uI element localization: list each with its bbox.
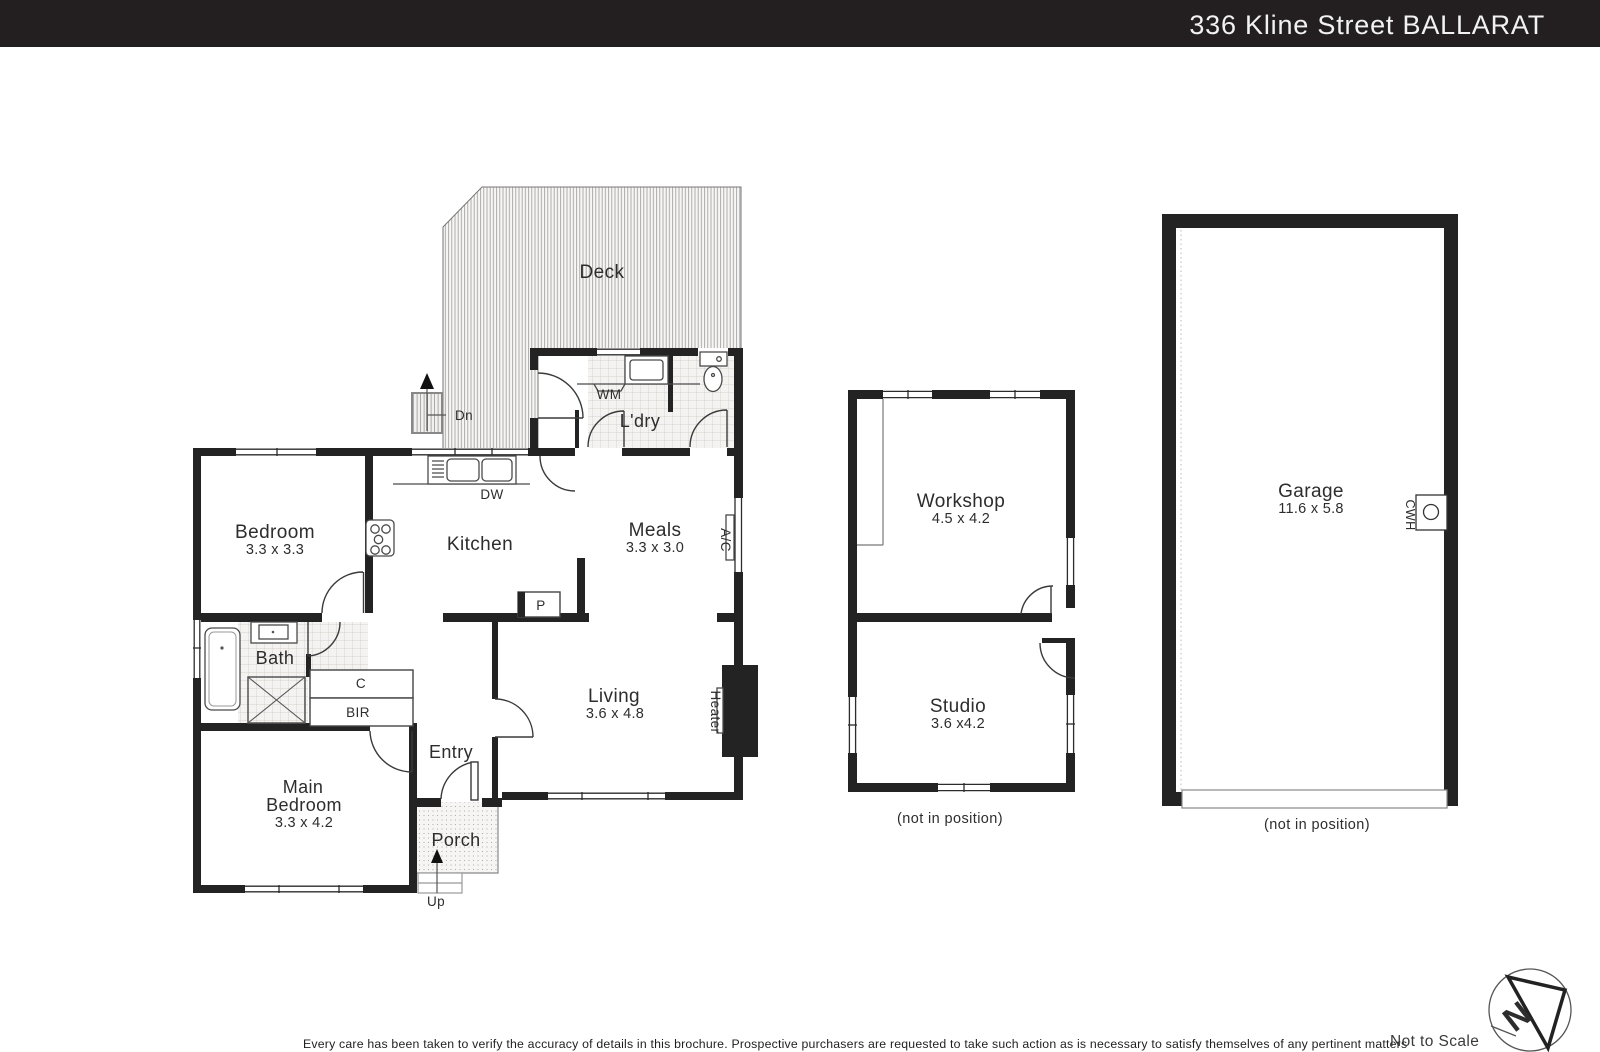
- footer: Every care has been taken to verify the …: [303, 1033, 1479, 1051]
- laundry-label: L'dry: [620, 411, 660, 431]
- page-title: 336 Kline Street BALLARAT: [1189, 10, 1545, 40]
- entry-label: Entry: [429, 742, 473, 762]
- workshop-label: Workshop: [917, 491, 1005, 512]
- workshop-dims: 4.5 x 4.2: [932, 511, 990, 527]
- header-bar: 336 Kline Street BALLARAT: [0, 0, 1600, 47]
- studio-bottom-window: [938, 783, 990, 792]
- robe-label: BIR: [346, 705, 370, 720]
- main-bedroom-dims: 3.3 x 4.2: [275, 815, 333, 831]
- not-to-scale-label: Not to Scale: [1390, 1033, 1479, 1050]
- disclaimer-text: Every care has been taken to verify the …: [303, 1037, 1407, 1051]
- down-arrow-icon: [420, 373, 434, 389]
- deck-stairs: [412, 373, 446, 433]
- main-bedroom-window: [245, 885, 363, 893]
- meals-dims: 3.3 x 3.0: [626, 540, 684, 556]
- workshop-window-1: [883, 390, 932, 399]
- living-label: Living: [588, 686, 640, 707]
- bath-window: [193, 620, 201, 678]
- bedroom-window: [236, 448, 316, 456]
- studio-dims: 3.6 x4.2: [931, 716, 985, 732]
- cupboard-label: C: [356, 676, 366, 691]
- workshop-side-window: [1066, 538, 1075, 585]
- cooktop: [366, 520, 394, 556]
- main-bedroom-door: [370, 731, 412, 772]
- porch-label: Porch: [431, 830, 480, 850]
- stairs-up-label: Up: [427, 894, 445, 909]
- dishwasher-label: DW: [480, 487, 503, 502]
- pantry-label: P: [536, 598, 545, 613]
- main-bedroom-label-2: Bedroom: [266, 795, 342, 815]
- hot-water-label: CWH: [1403, 499, 1417, 530]
- workshop-window-2: [990, 390, 1040, 399]
- living-window: [548, 792, 665, 800]
- studio-right-window: [1066, 695, 1075, 753]
- garage-door: [1182, 790, 1447, 808]
- bedroom-dims: 3.3 x 3.3: [246, 542, 304, 558]
- garage-dims: 11.6 x 5.8: [1278, 501, 1344, 517]
- workshop-door: [1021, 586, 1053, 614]
- floorplan-drawing: 336 Kline Street BALLARAT: [0, 0, 1600, 1052]
- workshop-bench: [857, 399, 883, 545]
- laundry-window: [597, 348, 640, 356]
- kitchen-window: [412, 448, 528, 456]
- stairs-down-label: Dn: [455, 408, 473, 423]
- deck-label: Deck: [580, 262, 625, 283]
- washing-machine-label: WM: [597, 387, 622, 402]
- vanity: [251, 622, 297, 643]
- living-dims: 3.6 x 4.8: [586, 706, 644, 722]
- outbuilding-caption: (not in position): [897, 811, 1003, 827]
- bathtub: [205, 628, 240, 710]
- north-compass: N: [1489, 969, 1571, 1051]
- front-door: [441, 762, 474, 799]
- kitchen-door: [540, 456, 575, 491]
- garage-label: Garage: [1278, 481, 1344, 502]
- kitchen-sink: [393, 456, 530, 484]
- garage-caption: (not in position): [1264, 817, 1370, 833]
- bedroom-door: [322, 572, 364, 613]
- bath-label: Bath: [256, 648, 295, 668]
- kitchen-label: Kitchen: [447, 534, 513, 555]
- ac-label: A/C: [718, 528, 733, 552]
- front-door-leaf: [471, 762, 478, 800]
- meals-label: Meals: [629, 520, 682, 541]
- bedroom-label: Bedroom: [235, 522, 315, 543]
- heater-label: Heater: [708, 691, 723, 734]
- floorplan-page: 336 Kline Street BALLARAT: [0, 0, 1600, 1052]
- hot-water-unit: [1416, 495, 1447, 530]
- studio-label: Studio: [930, 696, 986, 717]
- living-door: [495, 699, 533, 737]
- main-bedroom-label-1: Main: [283, 777, 324, 797]
- studio-left-window: [848, 697, 857, 753]
